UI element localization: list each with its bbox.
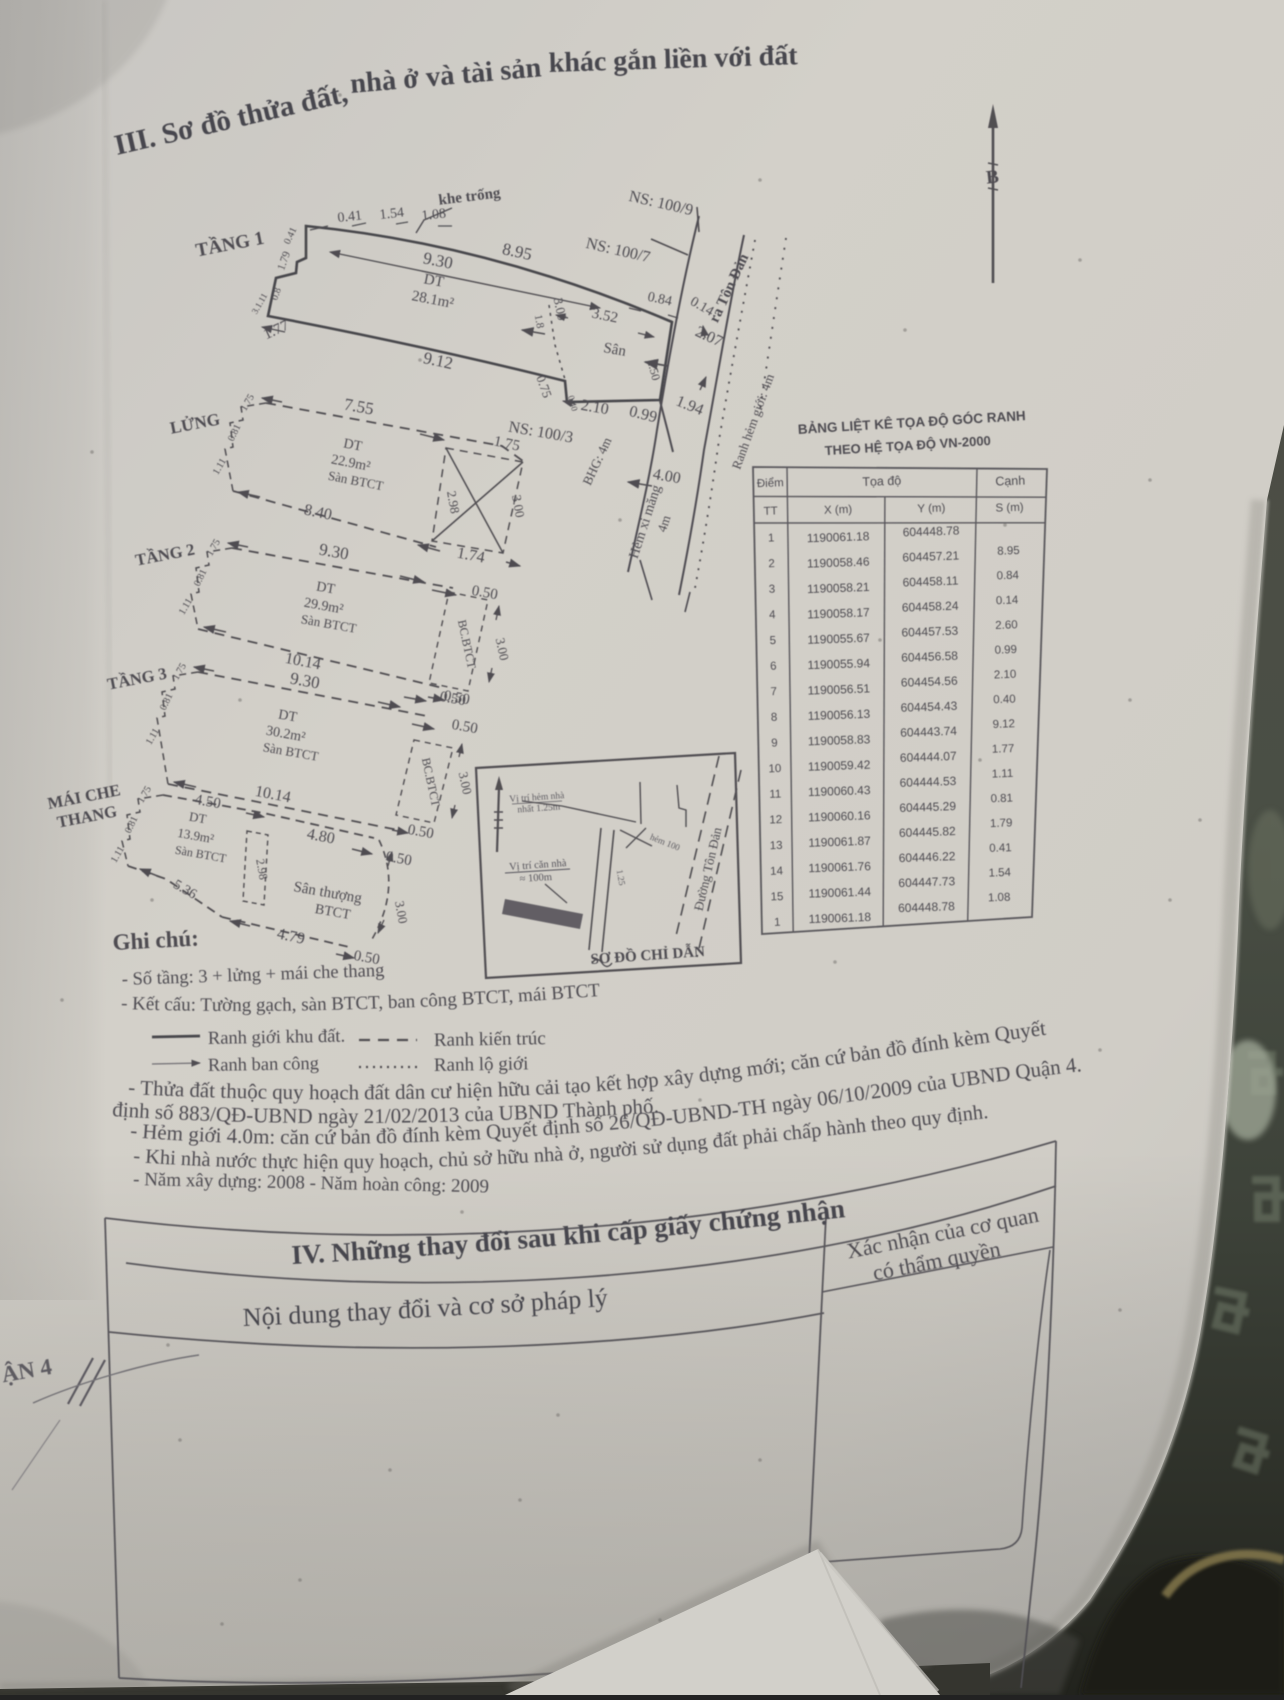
svg-text:9: 9 [771, 737, 778, 749]
svg-text:0.41: 0.41 [337, 208, 363, 225]
svg-text:1190060.43: 1190060.43 [808, 783, 871, 799]
svg-text:604457.53: 604457.53 [901, 624, 959, 640]
svg-text:TT: TT [763, 505, 777, 517]
svg-text:1190061.18: 1190061.18 [807, 529, 870, 545]
svg-text:Ranh giới khu đất.: Ranh giới khu đất. [208, 1027, 346, 1049]
svg-text:1: 1 [774, 917, 781, 929]
svg-text:7: 7 [770, 686, 777, 698]
svg-text:14: 14 [770, 865, 784, 877]
svg-text:1190061.18: 1190061.18 [808, 910, 871, 926]
svg-text:604458.11: 604458.11 [902, 574, 959, 590]
svg-text:1.08: 1.08 [988, 892, 1011, 905]
svg-text:Điểm: Điểm [757, 477, 784, 490]
svg-text:Ranh lộ giới: Ranh lộ giới [434, 1053, 529, 1076]
svg-text:11: 11 [769, 788, 781, 800]
svg-text:1190061.87: 1190061.87 [808, 834, 871, 850]
svg-text:1: 1 [768, 532, 775, 544]
svg-text:8: 8 [771, 712, 778, 724]
svg-text:Ranh ban công: Ranh ban công [208, 1054, 319, 1076]
svg-text:2: 2 [768, 558, 775, 570]
svg-text:9.12: 9.12 [992, 718, 1015, 731]
svg-text:1.54: 1.54 [379, 205, 405, 222]
svg-text:0.40: 0.40 [993, 694, 1016, 707]
svg-text:2.10: 2.10 [994, 669, 1017, 682]
svg-text:1190056.51: 1190056.51 [807, 681, 870, 697]
svg-text:604444.07: 604444.07 [900, 749, 958, 765]
svg-text:1190060.16: 1190060.16 [808, 808, 871, 824]
svg-text:2.60: 2.60 [995, 619, 1018, 632]
svg-text:1190061.44: 1190061.44 [808, 885, 871, 901]
svg-text:1.8: 1.8 [532, 314, 546, 330]
svg-text:Ranh kiến trúc: Ranh kiến trúc [434, 1028, 546, 1051]
svg-text:0.84: 0.84 [996, 570, 1019, 583]
svg-text:1.79: 1.79 [990, 817, 1013, 830]
svg-text:604448.78: 604448.78 [898, 899, 956, 915]
svg-text:604445.82: 604445.82 [899, 824, 957, 840]
svg-text:0.41: 0.41 [989, 842, 1012, 855]
svg-text:1190058.17: 1190058.17 [807, 605, 870, 621]
svg-text:5: 5 [769, 635, 776, 647]
svg-text:Ghi chú:: Ghi chú: [112, 926, 199, 955]
svg-text:1.11: 1.11 [992, 768, 1014, 781]
svg-text:604447.73: 604447.73 [898, 874, 956, 890]
svg-text:15: 15 [770, 891, 783, 903]
svg-text:604454.43: 604454.43 [900, 699, 958, 715]
svg-text:604443.74: 604443.74 [900, 724, 958, 740]
svg-text:1190055.94: 1190055.94 [807, 656, 870, 672]
svg-text:0.81: 0.81 [990, 793, 1013, 806]
svg-text:604454.56: 604454.56 [901, 674, 959, 690]
svg-text:Tọa độ: Tọa độ [862, 474, 901, 489]
svg-text:8.95: 8.95 [997, 545, 1020, 558]
svg-text:1190056.13: 1190056.13 [807, 707, 870, 723]
svg-text:604445.29: 604445.29 [899, 799, 957, 815]
svg-text:≈ 100m: ≈ 100m [519, 872, 552, 885]
svg-text:1190058.21: 1190058.21 [807, 580, 870, 596]
svg-text:604446.22: 604446.22 [898, 849, 956, 865]
svg-text:X (m): X (m) [824, 504, 853, 517]
svg-text:10: 10 [768, 763, 781, 775]
svg-text:0.99: 0.99 [994, 644, 1017, 657]
svg-text:1190055.67: 1190055.67 [807, 631, 870, 647]
svg-text:1190058.46: 1190058.46 [807, 555, 870, 571]
svg-text:DT: DT [188, 809, 208, 827]
svg-text:Cạnh: Cạnh [995, 473, 1025, 488]
svg-text:1190059.42: 1190059.42 [808, 758, 871, 774]
svg-text:604456.58: 604456.58 [901, 649, 959, 665]
svg-text:604448.78: 604448.78 [902, 523, 960, 539]
svg-text:604444.53: 604444.53 [899, 774, 957, 790]
svg-text:12: 12 [769, 814, 782, 826]
svg-text:1.77: 1.77 [992, 743, 1015, 756]
svg-text:4: 4 [769, 609, 776, 621]
svg-text:S (m): S (m) [995, 502, 1024, 515]
svg-text:13: 13 [770, 840, 783, 852]
svg-text:B: B [985, 166, 1000, 188]
svg-text:604457.21: 604457.21 [902, 549, 960, 565]
svg-text:0.14: 0.14 [996, 594, 1019, 607]
svg-text:604458.24: 604458.24 [902, 599, 960, 615]
svg-text:3: 3 [769, 584, 776, 596]
svg-text:Y (m): Y (m) [917, 502, 945, 515]
svg-text:1190058.83: 1190058.83 [808, 732, 871, 748]
svg-text:1190061.76: 1190061.76 [808, 859, 871, 875]
svg-text:1.54: 1.54 [988, 867, 1011, 880]
svg-text:6: 6 [770, 660, 777, 672]
